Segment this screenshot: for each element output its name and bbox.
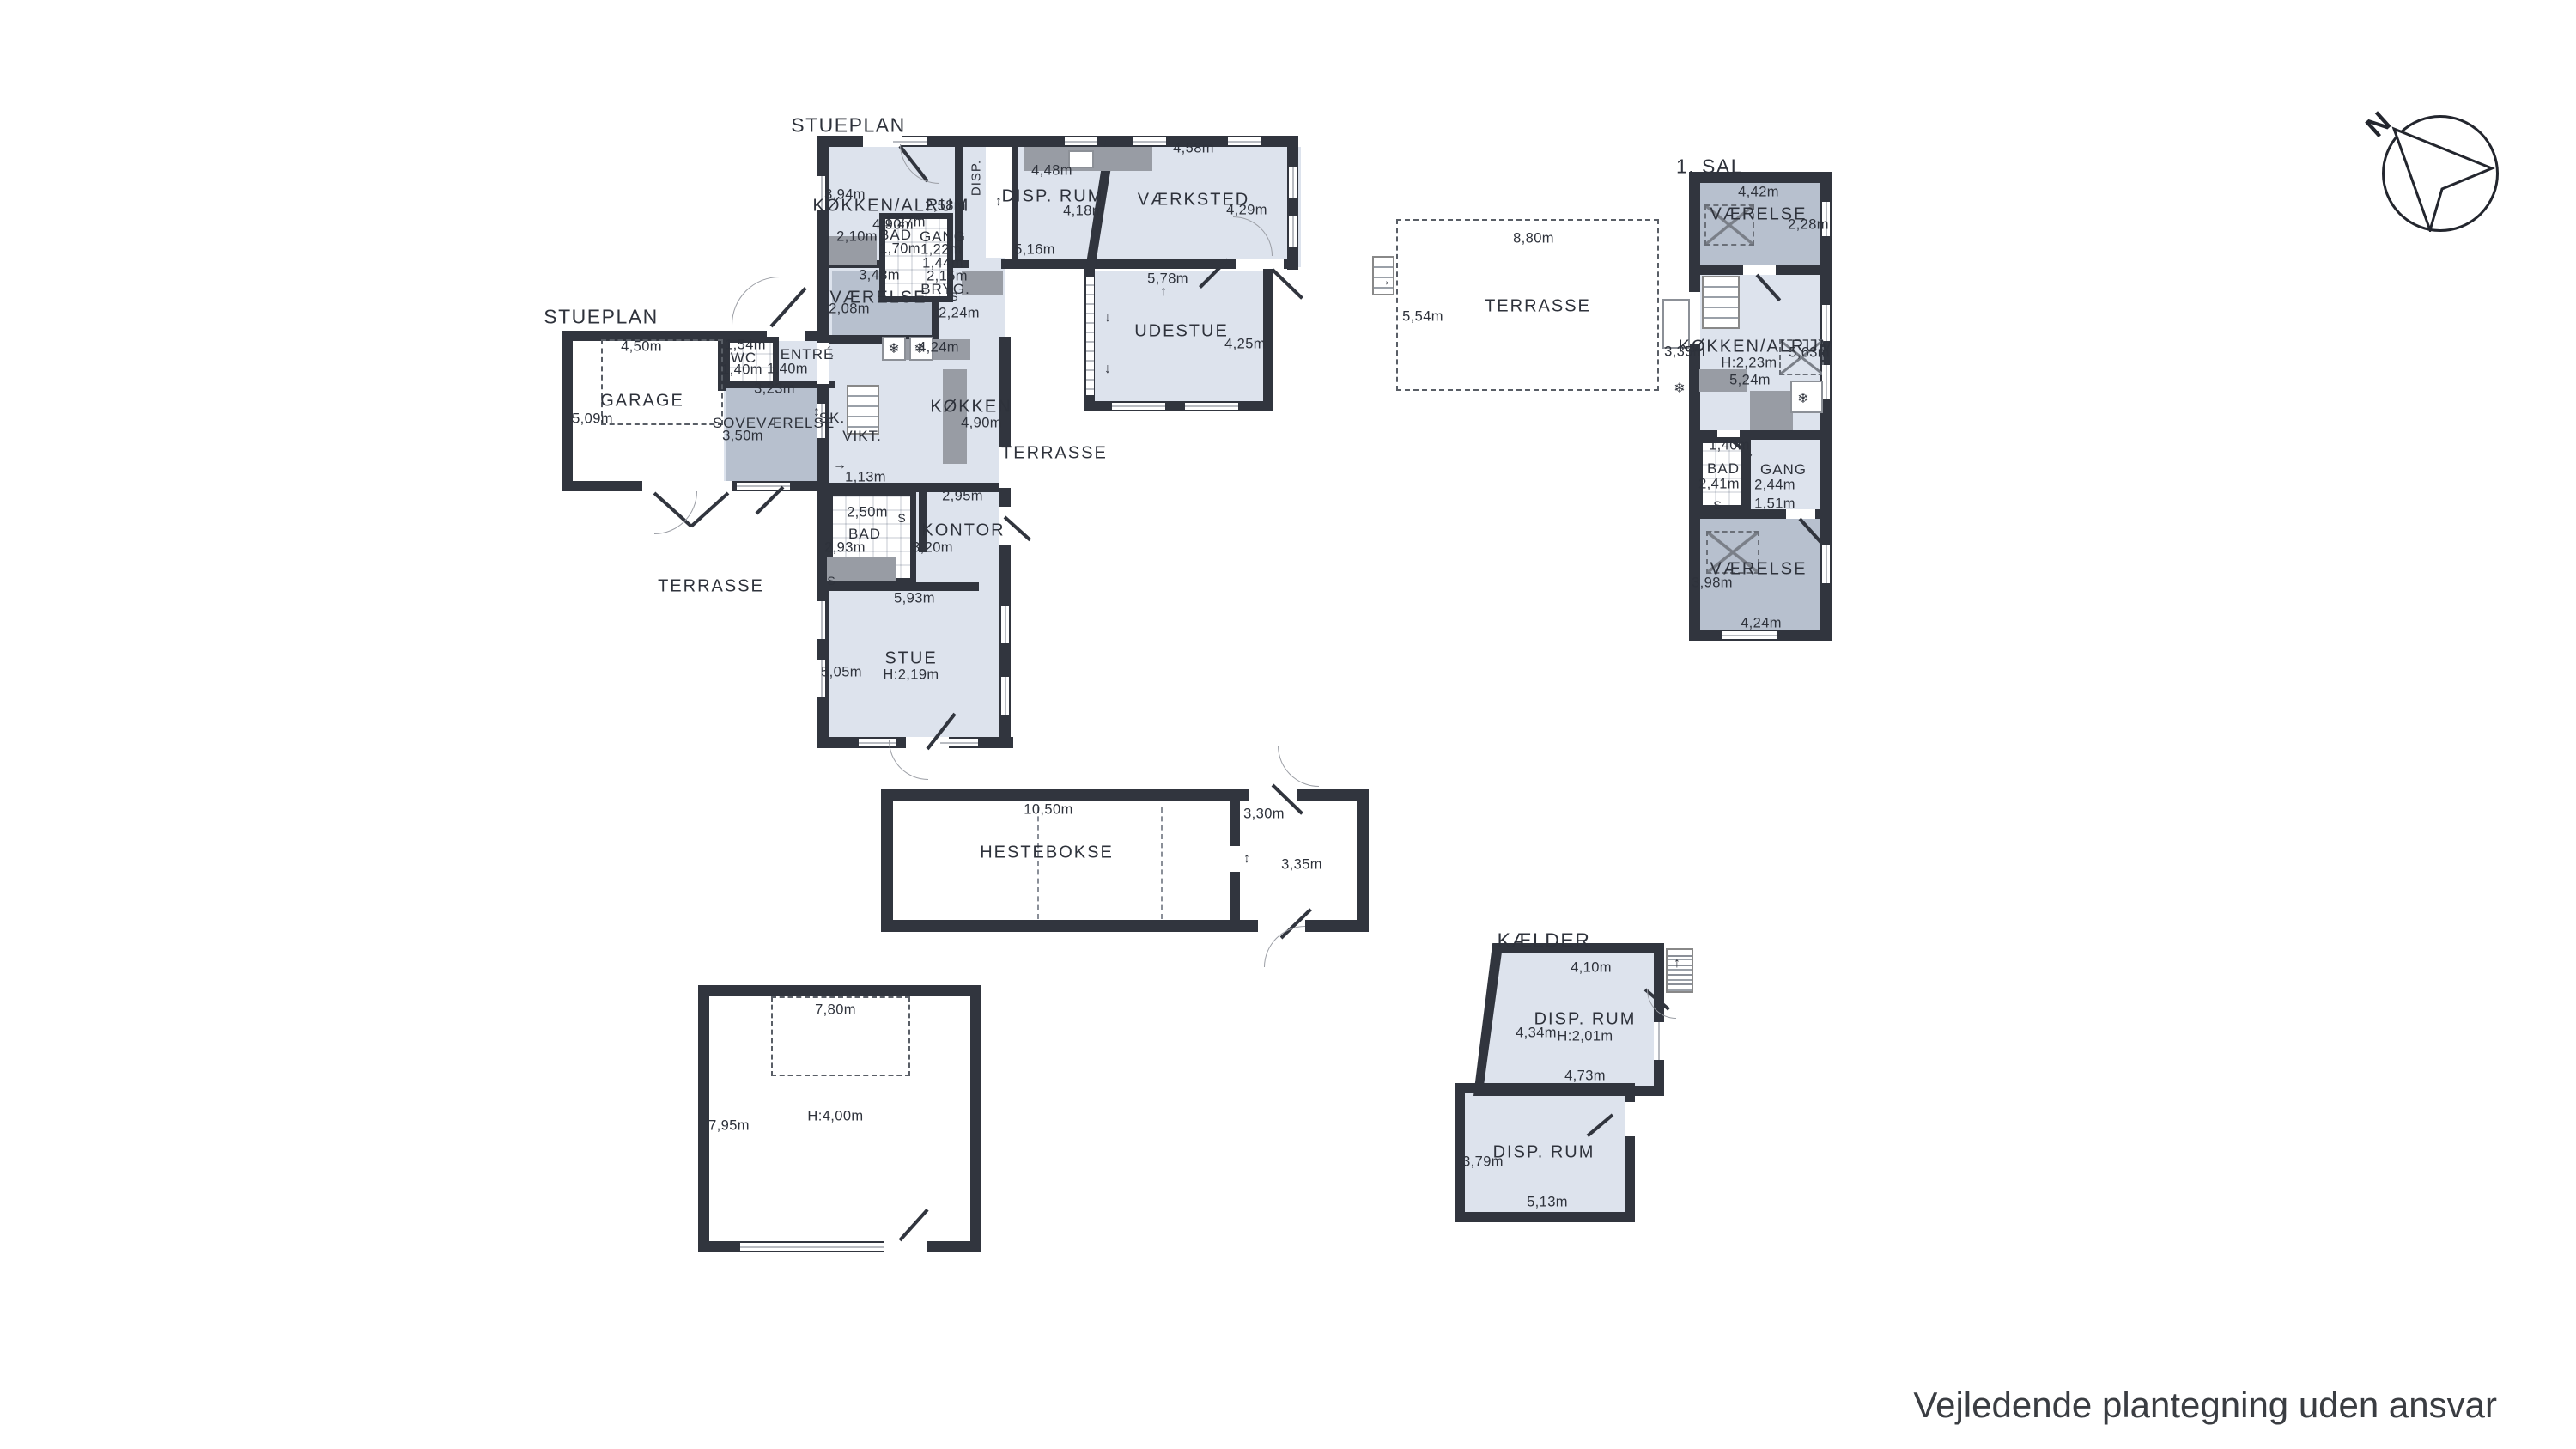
label-terrasse: TERRASSE <box>1001 444 1108 464</box>
wall <box>1455 1083 1635 1093</box>
label-s: S <box>1713 498 1721 512</box>
wall <box>1455 1083 1465 1222</box>
label-1-40m: 1,40m <box>1709 438 1750 454</box>
window <box>817 601 825 639</box>
wall <box>1287 136 1298 270</box>
door-opening <box>1689 292 1700 344</box>
arrow-updown-icon: ↕ <box>1243 851 1250 867</box>
label-4-58m: 4,58m <box>1173 141 1214 157</box>
label-1-51m: 1,51m <box>1754 496 1795 513</box>
compass-rose: N <box>2366 100 2499 232</box>
arrow-right-icon: → <box>823 347 836 362</box>
label-1-54m: 1,54m <box>725 338 766 354</box>
door-opening <box>1743 265 1776 275</box>
label-5-13m: 5,13m <box>1527 1195 1568 1211</box>
label-10-50m: 10,50m <box>1024 802 1072 819</box>
door-opening <box>1625 1102 1635 1136</box>
label-2-44m: 2,44m <box>1754 478 1795 494</box>
label-h-2-19m: H:2,19m <box>883 667 939 684</box>
label-bad: BAD <box>1707 460 1740 478</box>
arrow-down-icon: ↓ <box>1104 362 1111 377</box>
label-1-70m: 1,70m <box>879 241 920 258</box>
label-gang: GANG <box>1760 461 1807 478</box>
label-2-58m: 2,58m <box>925 198 966 215</box>
label-8-80m: 8,80m <box>1513 231 1554 247</box>
arrow-updown-icon: ↕ <box>995 194 1002 210</box>
label-k-kken: KØKKEN <box>930 398 1012 417</box>
label-1-40m: 1,40m <box>767 362 808 378</box>
label-5-54m: 5,54m <box>1402 309 1443 326</box>
label-vikt: VIKT. <box>842 428 882 445</box>
label-7-95m: 7,95m <box>708 1118 750 1135</box>
label-3-30m: 3,30m <box>1243 807 1285 823</box>
label-2-93m: 2,93m <box>824 540 866 557</box>
wall <box>970 985 981 1252</box>
disclaimer-text: Vejledende plantegning uden ansvar <box>1913 1385 2497 1426</box>
compass-needle-icon <box>2382 115 2499 232</box>
label-3-79m: 3,79m <box>1462 1154 1504 1171</box>
window <box>1001 677 1009 715</box>
label-3-94m: 3,94m <box>824 187 866 204</box>
window <box>1112 403 1165 410</box>
window <box>1001 606 1009 643</box>
label-4-24m: 4,24m <box>1741 616 1782 632</box>
window <box>1228 137 1261 145</box>
door-opening <box>884 1241 927 1252</box>
label-2-50m: 2,50m <box>847 505 888 521</box>
window <box>1065 137 1097 145</box>
door-swing-arc <box>654 491 697 534</box>
stair-step <box>1668 974 1692 976</box>
floor-plan-canvas: N Vejledende plantegning uden ansvar STU… <box>0 0 2576 1449</box>
arrow-up-icon: ↑ <box>1160 284 1167 300</box>
label-3-35m: 3,35m <box>1281 857 1322 874</box>
label-2-28m: 2,28m <box>1788 217 1829 234</box>
wall <box>1455 1212 1635 1222</box>
label-5-05m: 5,05m <box>821 665 862 681</box>
label-5-78m: 5,78m <box>1147 271 1188 288</box>
window <box>1822 365 1830 399</box>
label-terrasse: TERRASSE <box>658 577 764 597</box>
freezer-icon: ❄ <box>1674 380 1685 397</box>
arrow-up-icon: ↑ <box>1674 956 1680 971</box>
label-s: S <box>950 289 957 303</box>
wall <box>698 985 981 996</box>
plan-title-stueplan-garage: STUEPLAN <box>544 306 658 329</box>
label-garage: GARAGE <box>600 392 684 411</box>
label-2-24m: 2,24m <box>939 306 980 322</box>
garage-dashed-area <box>601 339 723 425</box>
label-kontor: KONTOR <box>921 521 1005 541</box>
freezer-icon: ❄ <box>914 340 925 357</box>
label-2-08m: 2,08m <box>829 301 870 318</box>
wall <box>817 136 829 348</box>
label-3-98m: 3,98m <box>1692 575 1733 592</box>
label-4-48m: 4,48m <box>1031 163 1072 180</box>
arrow-right-icon: → <box>833 458 847 473</box>
label-5-16m: 5,16m <box>1014 242 1055 259</box>
window <box>1822 545 1830 583</box>
freezer-icon: ❄ <box>1797 390 1808 407</box>
label-7-80m: 7,80m <box>815 1002 856 1019</box>
door-leaf <box>1272 269 1303 300</box>
label-3-48m: 3,48m <box>859 268 900 284</box>
label-udestue: UDESTUE <box>1134 322 1229 342</box>
label-bryg: BRYG. <box>920 281 970 298</box>
plan-title-first-floor: 1. SAL <box>1676 155 1743 179</box>
label-stue: STUE <box>884 649 937 669</box>
wall <box>698 985 709 1252</box>
window <box>1133 137 1166 145</box>
label-sk: SK. <box>819 410 845 427</box>
stair-step <box>1668 983 1692 985</box>
window <box>1289 216 1297 247</box>
window <box>1289 167 1297 198</box>
label-3-20m: 3,20m <box>912 540 953 557</box>
window <box>940 739 978 746</box>
label-4-73m: 4,73m <box>1564 1068 1606 1085</box>
label-5-93m: 5,93m <box>894 591 935 607</box>
label-disp: DISP. <box>969 160 984 196</box>
label-h-2-23m: H:2,23m <box>1721 356 1777 372</box>
stall-partition-dashed <box>1161 807 1163 919</box>
arrow-down-icon: ↓ <box>1104 310 1111 326</box>
label-3-23m: 3,23m <box>754 381 795 398</box>
label-terrasse: TERRASSE <box>1485 297 1591 317</box>
stairs-first-floor <box>1702 276 1740 329</box>
label-5-63m: 5,63m <box>1789 345 1830 362</box>
label-3-35m: 3,35m <box>1664 344 1705 361</box>
label-3-50m: 3,50m <box>722 429 763 445</box>
window <box>1185 403 1238 410</box>
label-disp-rum: DISP. RUM <box>1493 1143 1595 1163</box>
label-4-50m: 4,50m <box>621 339 662 356</box>
label-4-42m: 4,42m <box>1738 185 1779 201</box>
plan-title-stueplan-main: STUEPLAN <box>791 114 905 137</box>
plan-title-basement: KÆLDER <box>1498 929 1591 953</box>
label-5-09m: 5,09m <box>572 411 613 428</box>
freezer-icon: ❄ <box>888 340 899 357</box>
wall <box>1689 172 1700 641</box>
arrow-updown-icon: ↕ <box>813 405 820 420</box>
arrow-right-icon: → <box>1377 274 1391 289</box>
door-swing-arc <box>1264 926 1305 967</box>
window <box>1822 305 1830 341</box>
label-1-40m: 1,40m <box>721 362 762 379</box>
counter-fixture <box>827 557 896 581</box>
wall <box>881 789 893 932</box>
door-opening <box>1230 846 1240 872</box>
label-1-13m: 1,13m <box>845 470 886 486</box>
label-h-4-00m: H:4,00m <box>807 1109 863 1125</box>
door-swing-arc <box>889 740 928 780</box>
door-swing-arc <box>1278 746 1319 787</box>
label-4-34m: 4,34m <box>1516 1026 1557 1042</box>
door-opening <box>642 481 732 491</box>
label-s: S <box>827 574 835 588</box>
window <box>1722 631 1777 639</box>
label-2-95m: 2,95m <box>942 489 983 505</box>
counter-fixture <box>1750 391 1793 430</box>
wall <box>1357 789 1369 932</box>
stall-partition-dashed <box>1037 807 1039 919</box>
window <box>1654 1022 1664 1060</box>
label-hestebokse: HESTEBOKSE <box>980 843 1114 863</box>
label-s: S <box>897 511 905 525</box>
door-swing-arc <box>732 277 780 325</box>
label-4-25m: 4,25m <box>1224 337 1266 353</box>
label-4-18m: 4,18m <box>1063 204 1104 220</box>
label-4-10m: 4,10m <box>1571 960 1612 977</box>
label-5-24m: 5,24m <box>1729 373 1771 389</box>
label-4-90m: 4,90m <box>961 416 1002 432</box>
window-column <box>1086 277 1094 395</box>
door-opening <box>1236 259 1284 269</box>
label-4-29m: 4,29m <box>1226 203 1267 219</box>
label-2-10m: 2,10m <box>836 229 878 246</box>
label-h-2-01m: H:2,01m <box>1557 1029 1613 1045</box>
label-2-41m: 2,41m <box>1698 477 1740 493</box>
window <box>740 1243 884 1251</box>
